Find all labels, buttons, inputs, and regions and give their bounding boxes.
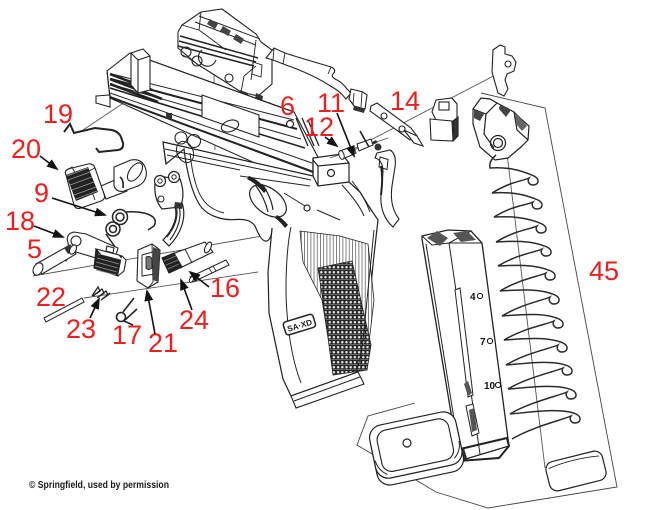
svg-text:7: 7 [480, 337, 486, 348]
svg-text:23: 23 [66, 314, 96, 344]
svg-text:4: 4 [470, 292, 476, 303]
svg-text:9: 9 [34, 178, 49, 208]
svg-text:19: 19 [43, 99, 73, 129]
svg-text:17: 17 [112, 320, 142, 350]
svg-text:20: 20 [11, 134, 41, 164]
svg-text:45: 45 [589, 256, 619, 286]
svg-text:22: 22 [36, 282, 66, 312]
svg-text:5: 5 [27, 234, 42, 264]
svg-text:21: 21 [148, 328, 178, 358]
svg-text:© Springfield, used by permiss: © Springfield, used by permission [29, 480, 169, 491]
svg-text:16: 16 [210, 273, 240, 303]
svg-text:6: 6 [280, 91, 295, 121]
svg-text:10: 10 [484, 381, 496, 392]
svg-text:24: 24 [179, 305, 209, 335]
svg-text:18: 18 [5, 206, 35, 236]
svg-text:11: 11 [317, 88, 345, 118]
svg-text:14: 14 [390, 86, 420, 116]
